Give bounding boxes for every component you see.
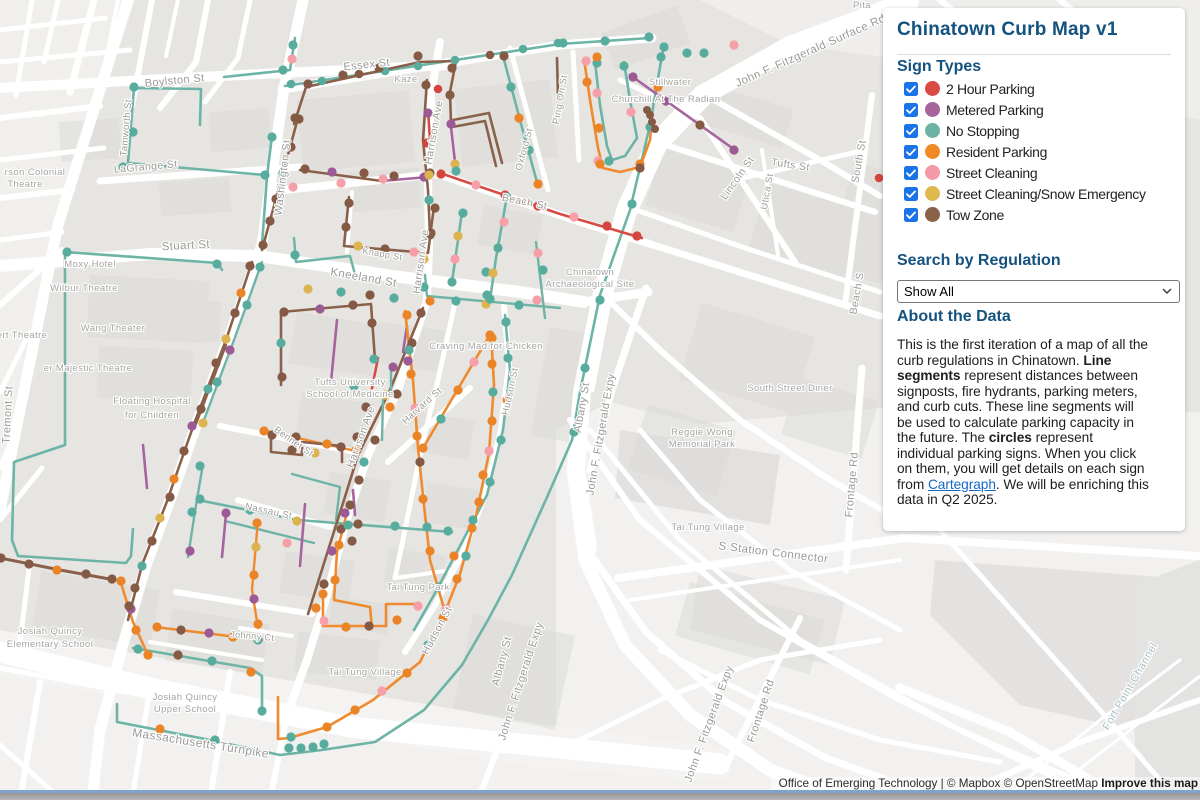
svg-text:Josiah Quincy: Josiah Quincy (18, 626, 83, 637)
svg-text:er Majestic Theatre: er Majestic Theatre (44, 363, 133, 374)
svg-text:South Street Diner: South Street Diner (747, 383, 832, 394)
svg-text:Josiah Quincy: Josiah Quincy (153, 692, 218, 703)
svg-text:Theatre: Theatre (7, 179, 43, 190)
svg-text:Wilbur Theatre: Wilbur Theatre (50, 283, 118, 294)
svg-text:Stillwater: Stillwater (649, 77, 692, 88)
svg-text:Tai Tung Park: Tai Tung Park (386, 582, 449, 593)
svg-text:Elementary School: Elementary School (7, 639, 94, 650)
svg-text:for Children: for Children (125, 410, 179, 421)
svg-text:Reggie Wong: Reggie Wong (671, 427, 733, 438)
svg-text:Stuart St: Stuart St (161, 239, 210, 254)
svg-text:Memorial Park: Memorial Park (669, 439, 735, 450)
svg-text:rson Colonial: rson Colonial (5, 167, 66, 178)
svg-text:Tai Tung Village: Tai Tung Village (328, 667, 401, 678)
svg-text:Craving Mad for Chicken: Craving Mad for Chicken (429, 341, 543, 352)
svg-text:Wang Theater: Wang Theater (81, 323, 145, 334)
svg-text:Tai Tung Village: Tai Tung Village (671, 522, 744, 533)
svg-text:Chinatown: Chinatown (566, 267, 615, 278)
svg-text:School of Medicine: School of Medicine (306, 389, 393, 400)
svg-text:Churchill At The Radian: Churchill At The Radian (612, 94, 721, 105)
svg-text:Tufts University: Tufts University (314, 377, 386, 388)
svg-text:Archaeological Site: Archaeological Site (546, 279, 635, 290)
svg-text:Kaze: Kaze (394, 74, 417, 85)
svg-text:ert Theatre: ert Theatre (0, 330, 47, 341)
svg-text:Pita: Pita (853, 0, 871, 11)
svg-text:Floating Hospital: Floating Hospital (113, 396, 191, 407)
svg-text:Moxy Hotel: Moxy Hotel (64, 259, 116, 270)
svg-text:Upper School: Upper School (154, 704, 216, 715)
